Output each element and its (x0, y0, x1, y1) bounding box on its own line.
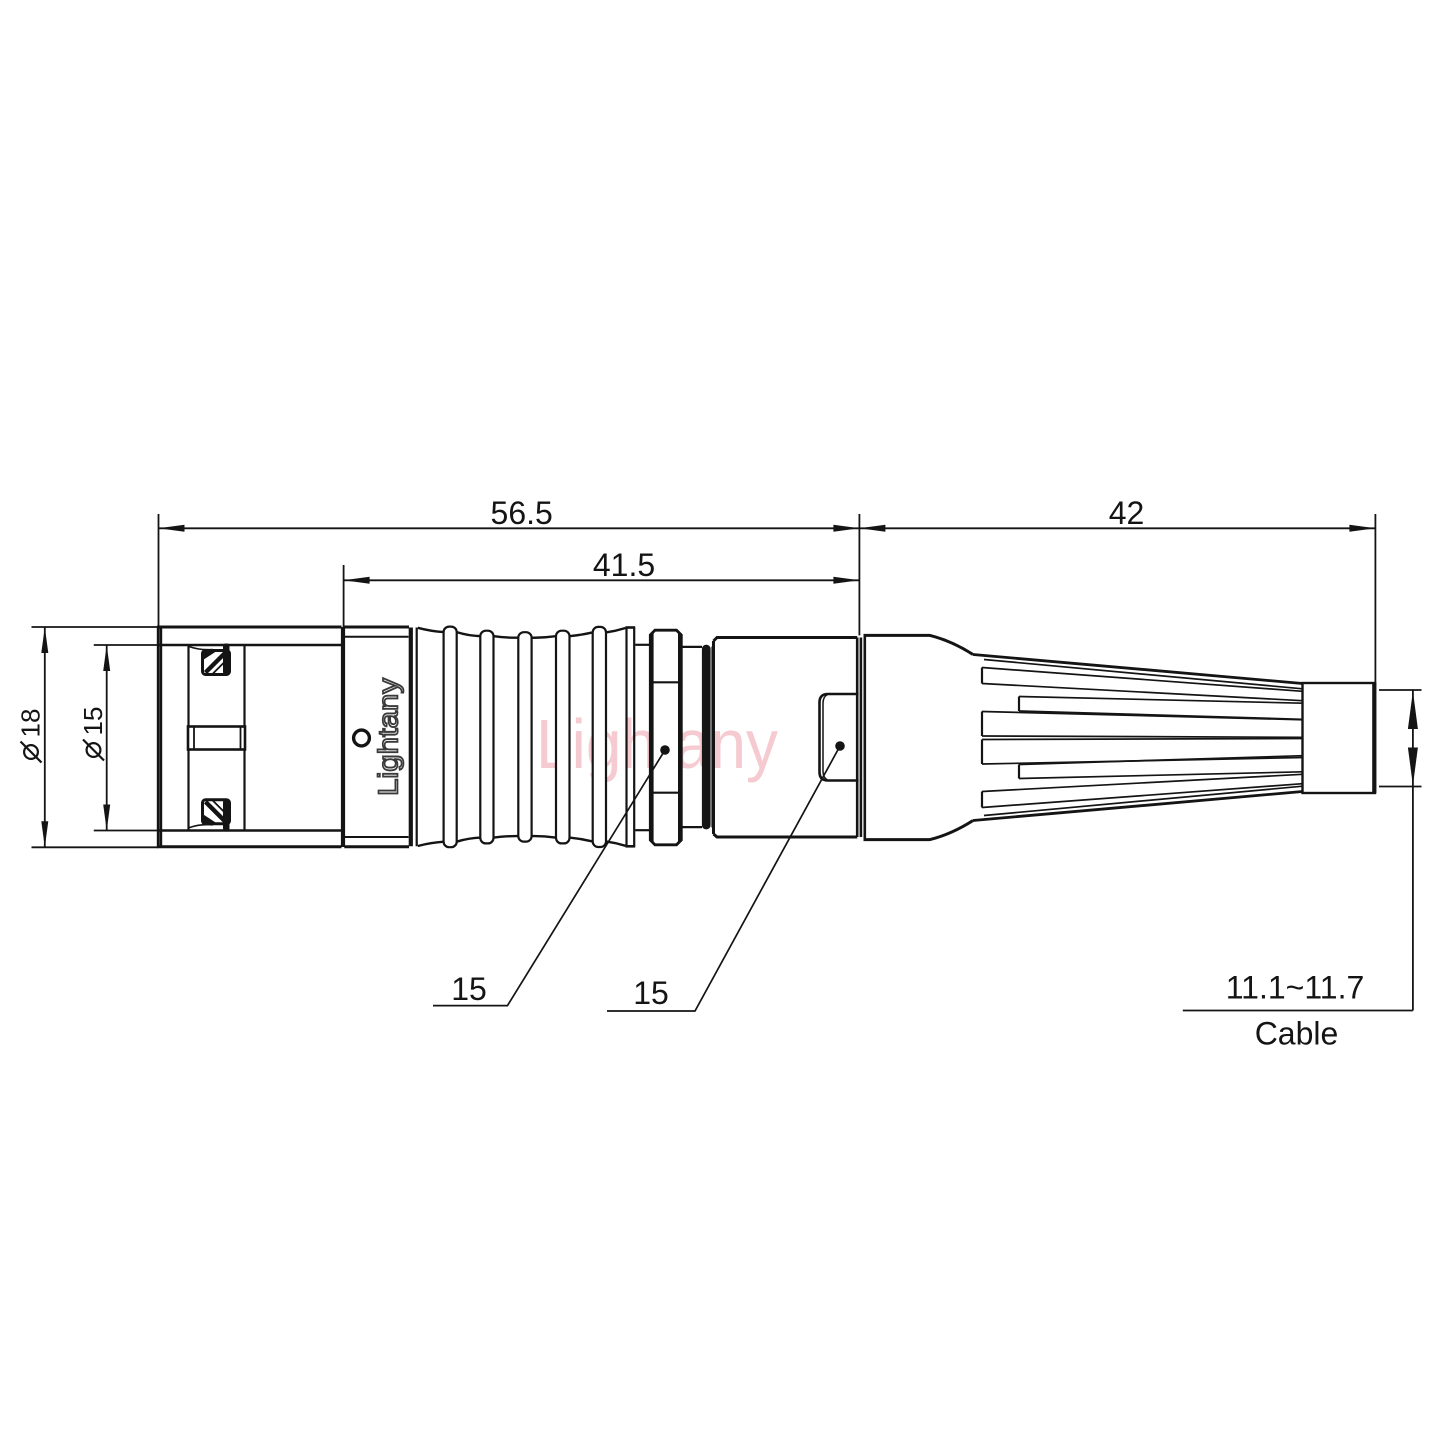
svg-text:15: 15 (78, 707, 108, 736)
svg-text:18: 18 (16, 709, 46, 738)
svg-text:56.5: 56.5 (491, 495, 553, 531)
svg-text:41.5: 41.5 (593, 547, 655, 583)
svg-text:15: 15 (451, 971, 487, 1007)
svg-text:15: 15 (633, 975, 669, 1011)
svg-text:11.1~11.7: 11.1~11.7 (1226, 969, 1365, 1005)
svg-text:Lightany: Lightany (373, 678, 404, 796)
svg-text:42: 42 (1109, 495, 1145, 531)
svg-text:Cable: Cable (1255, 1016, 1339, 1052)
